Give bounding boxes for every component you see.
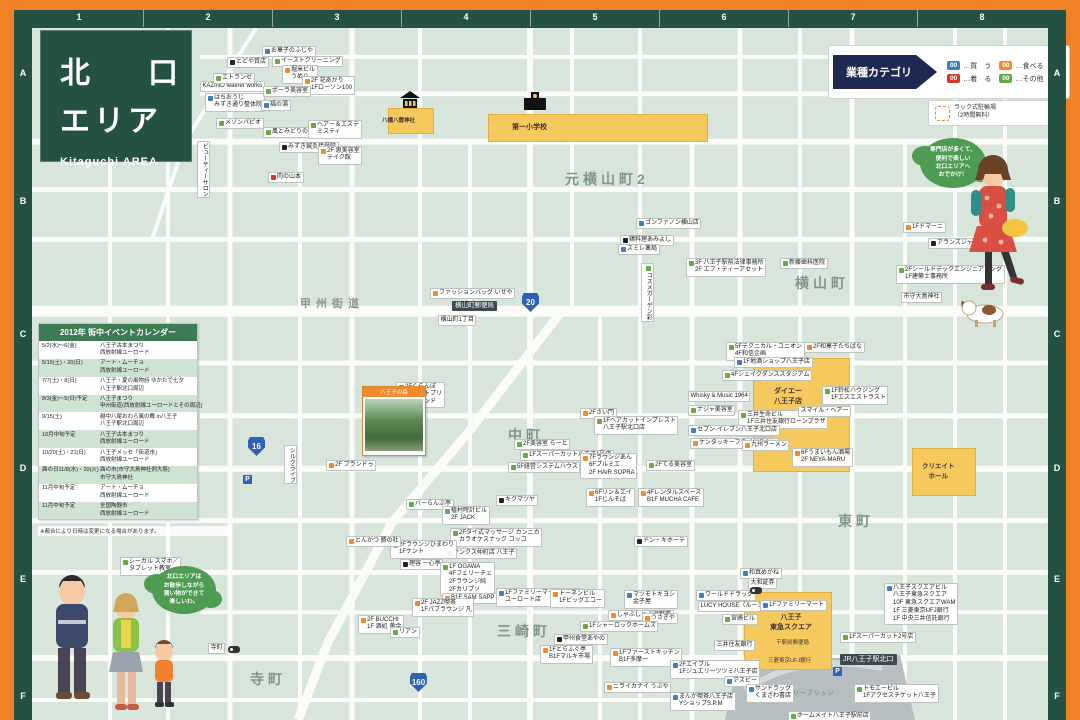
- map-label-text: 和真めがね: [749, 570, 779, 578]
- category-dot: [689, 261, 694, 266]
- mother-figure: [109, 593, 143, 710]
- event-date: 8/3(金)～5(日)予定: [42, 396, 100, 411]
- map-label: 1Fスーパーカット2号店: [840, 632, 916, 643]
- category-dot: [123, 560, 128, 565]
- category-dot: [230, 60, 235, 65]
- map-label: ポーラ美容室: [263, 86, 311, 97]
- legend-category-code: 00: [999, 74, 1012, 83]
- map-label: 1Fとらふぐ亭 B1Fマルキ市場: [540, 645, 593, 664]
- category-dot: [639, 221, 644, 226]
- map-label-text: 3F 八王子駅前法律事務所 2F エフ・ティーアセット: [695, 260, 764, 276]
- map-label-text: はちおうじ みずき通り整体院: [214, 95, 262, 111]
- category-dot: [543, 648, 548, 653]
- street-name-label: 甲州街道: [300, 295, 364, 311]
- category-dot: [349, 539, 354, 544]
- grid-column-label: 3: [334, 12, 339, 22]
- map-label-text: 2F ブランドゥ: [335, 462, 374, 470]
- category-dot: [649, 463, 654, 468]
- category-dot: [725, 373, 730, 378]
- grid-divider: [143, 10, 144, 27]
- school-label: 第一小学校: [512, 122, 547, 132]
- grid-row-label-right: A: [1048, 68, 1066, 78]
- category-dot: [613, 651, 618, 656]
- map-label-text: 4Fシェイクダンススタジアム: [731, 372, 810, 380]
- map-label-text: 八王子スクエアビル 八王子東急スクエア 10F 東急スクエアWAM 1F 三菱東…: [893, 585, 955, 624]
- map-label-text: ファッションバッグ いせや: [439, 290, 513, 298]
- category-dot: [899, 268, 904, 273]
- area-title-line2: エリア: [60, 96, 192, 140]
- map-label: 1Fヘアカットインプレスト 八王子駅北口店: [594, 416, 678, 435]
- grid-column-label: 4: [463, 12, 468, 22]
- map-label: ホームメイト八王子駅前店: [788, 711, 871, 720]
- legend-category-label: …買 う: [963, 61, 991, 71]
- map-label: 市守大鳥神社: [901, 292, 942, 303]
- map-label: ドン・キホーテ: [634, 536, 688, 547]
- map-label: 肉の山本: [268, 172, 304, 183]
- legend-item: 00…着 る: [947, 74, 991, 84]
- map-label: サンドラッグ くまざわ書店: [746, 684, 794, 703]
- map-label-text: メゾンパピオ: [225, 120, 261, 128]
- map-label: ファッションバッグ いせや: [430, 288, 515, 299]
- category-dot: [807, 345, 812, 350]
- map-label-text: 1Fヘアカットインプレスト 八王子駅北口店: [603, 418, 676, 434]
- map-label: リアン: [390, 627, 420, 638]
- map-label: スマイル・ヘアー: [798, 406, 851, 417]
- father-figure: [56, 575, 90, 699]
- map-label: ゴンファノン横山店: [636, 218, 701, 229]
- grid-column-label: 2: [205, 12, 210, 22]
- map-label-text: 2Fてる美容室: [655, 462, 692, 470]
- map-label-text: 2F和菓子たちばな: [813, 344, 862, 352]
- map-label-text: 横山町郵便局: [455, 302, 494, 310]
- map-label: シルクライブ: [284, 445, 297, 484]
- map-label: 九州ラーメン: [742, 440, 789, 451]
- category-dot: [305, 79, 310, 84]
- category-dot: [271, 175, 276, 180]
- category-dot: [415, 601, 420, 606]
- legend-category-label: …食べる: [1015, 61, 1043, 71]
- map-label-text: 植村時計ビル 2F JACK: [451, 508, 487, 524]
- school-icon: [522, 90, 548, 112]
- map-label-text: 市守大鳥神社: [904, 294, 940, 302]
- category-dot: [517, 442, 522, 447]
- map-label: 3F 八王子駅前法律事務所 2F エフ・ティーアセット: [686, 258, 766, 277]
- category-dot: [453, 531, 458, 536]
- map-label: 八王子スクエアビル 八王子東急スクエア 10F 東急スクエアWAM 1F 三菱東…: [884, 583, 958, 625]
- category-dot: [266, 89, 271, 94]
- map-label: ナジャ美容室: [688, 405, 735, 416]
- event-calendar-title: 2012年 街中イベントカレンダー: [39, 324, 197, 341]
- photo-image: [365, 399, 423, 451]
- grid-band-left: ABCDEF: [14, 10, 32, 720]
- event-calendar-row: 5/19(土)・20(日)アート・ムーチョ 西放射線ユーロード: [39, 359, 197, 377]
- district-label: 横山町: [795, 273, 849, 293]
- district-label: 寺町: [250, 669, 286, 689]
- family-illustration: [34, 570, 194, 720]
- event-date: 5/2(水)～6(金): [42, 343, 100, 358]
- category-dot: [393, 630, 398, 635]
- map-label: 寺町: [208, 643, 225, 654]
- grid-column-label: 1: [76, 12, 81, 22]
- map-label-text: ヘアー＆エステ ミスティ: [317, 122, 359, 138]
- shrine-icon: [398, 90, 422, 110]
- map-label-text: ナジャ美容室: [697, 407, 733, 415]
- event-calendar-row: 11月中旬予定アート・ムーチョ 西放射線ユーロード: [39, 484, 197, 502]
- map-label: 2F和菓子たちばな: [804, 342, 865, 353]
- bicycle-parking-icon: [935, 106, 950, 121]
- category-dot: [621, 247, 626, 252]
- area-title-line1: 北 口: [60, 48, 192, 92]
- event-detail: 八王子メッセ「街道市」 西放射線ユーロード: [100, 450, 194, 465]
- category-dot: [857, 687, 862, 692]
- event-calendar-row: 8/3(金)～5(日)予定八王子まつり 甲州街道(西放射線ユーロードとその周辺): [39, 395, 197, 413]
- map-label: 理容 一心亭: [400, 559, 443, 570]
- map-label-text: 2Fエイブル 1Fジュエリーツツミ八王子店: [679, 662, 757, 678]
- event-detail: 八王子まつり 甲州街道(西放射線ユーロードとその周辺): [100, 396, 203, 411]
- map-label: 1F地酒ショップ八王子店: [734, 357, 813, 368]
- map-label: エトランゼ: [213, 73, 255, 84]
- category-dot: [511, 465, 516, 470]
- grid-column-label: 8: [979, 12, 984, 22]
- map-label-text: トーネンビル 1Fビッグエコー: [559, 591, 602, 607]
- category-dot: [553, 592, 558, 597]
- map-label-text: 1Fファミリーマート: [769, 602, 824, 610]
- dog-figure: [961, 301, 1003, 327]
- grid-divider: [659, 10, 660, 27]
- category-dot: [623, 238, 628, 243]
- photo-caption: 八王子の森: [363, 387, 425, 397]
- grid-row-label-left: B: [14, 196, 32, 206]
- bicycle-parking-label: ラック式駐輪場 （2時間無料）: [954, 105, 996, 121]
- map-label-text: ポーラ美容室: [272, 88, 308, 96]
- category-dot: [931, 241, 936, 246]
- map-label: 横山町郵便局: [452, 301, 497, 311]
- category-dot: [673, 663, 678, 668]
- event-calendar-row: 酉の日11/8(水)・20(火)酉の市(市守大鳥神社例大祭) 市守大鳥神社: [39, 466, 197, 484]
- category-dot: [727, 679, 732, 684]
- map-label-text: 2F 花あかり 1Fローソン100: [311, 78, 352, 94]
- grid-row-label-left: F: [14, 691, 32, 701]
- parking-icon: P: [833, 667, 842, 676]
- category-dot: [523, 453, 528, 458]
- grid-column-label: 6: [721, 12, 726, 22]
- map-label-text: マツモトキヨシ 金子屋: [633, 592, 675, 608]
- grid-divider: [530, 10, 531, 27]
- grid-divider: [788, 10, 789, 27]
- map-label-text: ビューティーサロン: [200, 143, 208, 197]
- map-label: 2F 恵美容室 テイク館: [318, 146, 362, 165]
- category-dot: [906, 225, 911, 230]
- map-label: 甲州食堂あやの: [554, 634, 608, 645]
- event-detail: 八王子古本まつり 西放射線ユーロード: [100, 343, 194, 358]
- map-label: ビューティーサロン: [197, 141, 210, 198]
- event-detail: 八王子・夏の風物詩 ゆかたで七夕 八王子駅北口周辺: [100, 378, 194, 393]
- map-label: とどや質店: [227, 57, 269, 68]
- category-dot: [329, 463, 334, 468]
- map-label-text: 三井住友銀行: [717, 642, 753, 650]
- event-calendar-row: 9/15(土)越中八尾おわら風の舞 in八王子 八王子駅北口周辺: [39, 412, 197, 430]
- legend-item: 00…その他: [999, 74, 1043, 84]
- grid-row-label-left: A: [14, 68, 32, 78]
- map-label: 新藤歯科医院: [780, 258, 828, 269]
- map-label-text: 2F 恵美容室 テイク館: [327, 148, 360, 164]
- event-detail: 酉の市(市守大鳥神社例大祭) 市守大鳥神社: [100, 467, 194, 482]
- parking-icon: P: [243, 475, 252, 484]
- map-label-text: 甲州食堂あやの: [563, 636, 605, 644]
- event-detail: 八王子古本まつり 西放射線ユーロード: [100, 432, 194, 447]
- map-label: Whisky & Music 1964: [688, 391, 750, 402]
- event-date: 11月中旬予定: [42, 485, 100, 500]
- area-title-box: 北 口 エリア Kitaguchi AREA: [40, 30, 192, 162]
- category-dot: [673, 695, 678, 700]
- map-label: 福の湯: [261, 100, 291, 111]
- category-dot: [887, 586, 892, 591]
- map-label: 2F JAZZ喫茶 1Fパブラウンジ 凡: [412, 598, 474, 617]
- bicycle-parking-legend: ラック式駐輪場 （2時間無料）: [928, 100, 1060, 126]
- category-dot: [264, 103, 269, 108]
- category-dot: [743, 571, 748, 576]
- grid-row-label-left: C: [14, 329, 32, 339]
- map-label: 植村時計ビル 2F JACK: [442, 506, 490, 525]
- map-label-text: 6Fうまいもん酒場 2F NEYA-MARU: [801, 450, 850, 466]
- category-dot: [611, 613, 616, 618]
- station-label: JR八王子駅北口: [840, 654, 897, 665]
- map-label-text: 宮崎ビル: [731, 616, 755, 624]
- bus-stop-icon: [750, 587, 762, 594]
- category-dot: [843, 635, 848, 640]
- map-label: マツモトキヨシ 金子屋: [624, 590, 678, 609]
- category-dot: [443, 565, 448, 570]
- map-label: メゾンパピオ: [216, 118, 264, 129]
- map-label-text: 福の湯: [270, 102, 288, 110]
- category-dot: [216, 76, 221, 81]
- bus-stop-icon: [228, 646, 240, 653]
- map-label-text: サンクス仲町店 八王子: [453, 550, 515, 558]
- category-dot: [737, 360, 742, 365]
- event-date: 酉の日11/8(水)・20(火): [42, 467, 100, 482]
- map-label: キクマツヤ: [496, 495, 538, 506]
- category-legend: 業種カテゴリ 00…買 う00…食べる00…着 る00…その他: [828, 45, 1070, 99]
- map-label-text: キクマツヤ: [505, 497, 535, 505]
- map-label: 5F経営システムハウス: [508, 462, 580, 473]
- map-label-text: ワールドドラッグ: [705, 592, 753, 600]
- map-label-text: ニライカナイ うぶや: [613, 684, 669, 692]
- map-label-text: ホームメイト八王子駅前店: [797, 713, 869, 720]
- map-label-text: 5F経営システムハウス: [517, 464, 578, 472]
- district-label: 元横山町2: [565, 169, 649, 189]
- map-label-text: 1Fとらふぐ亭 B1Fマルキ市場: [549, 647, 590, 663]
- category-dot: [321, 149, 326, 154]
- event-calendar-row: 10月中旬予定八王子古本まつり 西放射線ユーロード: [39, 430, 197, 448]
- grid-row-label-left: D: [14, 463, 32, 473]
- category-dot: [699, 593, 704, 598]
- grid-row-label-left: E: [14, 574, 32, 584]
- category-dot: [725, 617, 730, 622]
- event-detail: 越中八尾おわら風の舞 in八王子 八王子駅北口周辺: [100, 414, 194, 429]
- category-dot: [445, 509, 450, 514]
- grid-row-label-right: E: [1048, 574, 1066, 584]
- woman-figure: [969, 155, 1028, 290]
- category-dot: [583, 411, 588, 416]
- map-label-text: セブン-イレブン八王子北口店: [697, 427, 777, 435]
- map-label-text: 2F JAZZ喫茶 1Fパブラウンジ 凡: [421, 600, 472, 616]
- map-label: 2Fタイ式マッサージ カンニカ カラオケスナック コッコ: [450, 528, 542, 547]
- child-figure: [155, 640, 174, 707]
- map-label: トーネンビル 1Fビッグエコー: [550, 589, 605, 608]
- map-label-text: 1F地酒ショップ八王子店: [743, 359, 810, 367]
- map-label-text: 1Fスーパーカット2号店: [849, 634, 913, 642]
- map-label-text: 2Fタイ式マッサージ カンニカ カラオケスナック コッコ: [459, 530, 540, 546]
- category-dot: [266, 130, 271, 135]
- category-dot: [791, 714, 796, 719]
- category-dot: [637, 539, 642, 544]
- category-dot: [783, 261, 788, 266]
- category-dot: [403, 562, 408, 567]
- grid-divider: [401, 10, 402, 27]
- event-detail: 全国陶器市 西放射線ユーロード: [100, 503, 194, 518]
- legend-item: 00…買 う: [947, 61, 991, 71]
- create-hall-label: クリエイト ホール: [922, 460, 955, 480]
- map-label: 1F鈴松ハウジング 1Fエスエストラスト: [822, 386, 888, 405]
- map-label: 4Fシェイクダンススタジアム: [722, 370, 812, 381]
- map-label-text: 横山町1丁目: [441, 317, 474, 325]
- district-label: 三崎町: [497, 621, 551, 641]
- map-label: 横山町1丁目: [438, 315, 476, 326]
- map-label: コスメガーデン彩: [641, 263, 654, 322]
- category-dot: [361, 618, 366, 623]
- legend-category-code: 00: [947, 61, 960, 70]
- map-label: 6Fリン＆エイ 1Fじんそば: [586, 488, 635, 507]
- map-label: セブン-イレブン八王子北口店: [688, 425, 780, 436]
- category-dot: [219, 121, 224, 126]
- grid-row-label-right: B: [1048, 196, 1066, 206]
- category-dot: [691, 408, 696, 413]
- category-dot: [583, 456, 588, 461]
- category-dot: [745, 443, 750, 448]
- map-label: 1Fシャーロックホームズ: [580, 621, 658, 632]
- event-date: 7/7(土)・8(日): [42, 378, 100, 393]
- post-office-label: 〒駅前郵便局: [776, 638, 809, 646]
- category-dot: [311, 123, 316, 128]
- map-label-text: ゴンファノン横山店: [645, 220, 699, 228]
- map-label-text: エトランゼ: [222, 75, 252, 83]
- map-label-text: スミレ薬局: [627, 246, 657, 254]
- map-label: 1Fファミリーマート: [760, 600, 827, 611]
- category-dot: [583, 624, 588, 629]
- grid-band-right: ABCDEF: [1048, 10, 1066, 720]
- map-label: トモエービル 1Fアクセスチケット八王子: [854, 684, 939, 703]
- shopper-illustration: [945, 150, 1045, 330]
- map-label: 2F美容室 らーと: [514, 439, 570, 450]
- category-dot: [265, 49, 270, 54]
- legend-category-label: …着 る: [963, 74, 991, 84]
- legend-items: 00…買 う00…食べる00…着 る00…その他: [947, 61, 1043, 84]
- map-label: スミレ薬局: [618, 244, 660, 255]
- map-label-text: 理容 一心亭: [409, 561, 441, 569]
- map-label-text: 1F OGAWA 4Fフェリーチェ 2Fラウンジ純 2Fカリプソ: [449, 564, 492, 595]
- map-label: 宮崎ビル: [722, 614, 758, 625]
- grid-band-top: 12345678: [14, 10, 1066, 27]
- event-calendar-note: ※都合により日時は変更になる場合があります。: [38, 526, 232, 536]
- grid-column-label: 5: [592, 12, 597, 22]
- event-detail: アート・ムーチョ 西放射線ユーロード: [100, 360, 194, 375]
- map-label: 三井住友銀行: [714, 640, 755, 651]
- map-label: ニライカナイ うぶや: [604, 682, 671, 693]
- map-label: とんかつ 勝の杜: [346, 536, 401, 547]
- event-date: 10月中旬予定: [42, 432, 100, 447]
- legend-category-code: 00: [947, 74, 960, 83]
- map-label-text: 2Fラウンジひまわり 1Fケント: [399, 542, 454, 558]
- category-dot: [641, 491, 646, 496]
- map-label: 7Fラウンジあん 6Fプルミエ 2F HAIR SOPRA: [580, 453, 637, 479]
- event-detail: アート・ムーチョ 西放射線ユーロード: [100, 485, 194, 500]
- area-title-subtitle: Kitaguchi AREA: [60, 156, 192, 168]
- map-label: 4Fレンタルスペース B1F MUCHA CAFE: [638, 488, 704, 507]
- category-dot: [646, 266, 651, 271]
- grid-row-label-right: C: [1048, 329, 1066, 339]
- event-calendar-row: 5/2(水)～6(金)八王子古本まつり 西放射線ユーロード: [39, 341, 197, 359]
- map-label-text: Whisky & Music 1964: [691, 393, 748, 401]
- ufj-bank-label: 三菱東京UFJ銀行: [768, 656, 811, 664]
- shrine-label: 八幡八雲神社: [382, 116, 415, 124]
- event-calendar-row: 7/7(土)・8(日)八王子・夏の風物詩 ゆかたで七夕 八王子駅北口周辺: [39, 377, 197, 395]
- map-label-text: 寺町: [211, 645, 223, 653]
- map-label-text: 2F美容室 らーと: [523, 441, 568, 449]
- map-label-text: スマイル・ヘアー: [801, 408, 849, 416]
- map-label-text: シルクライブ: [287, 447, 295, 483]
- map-label: ワールドドラッグ: [696, 590, 756, 601]
- tokyu-square-label: 八王子 東急スクエア: [770, 612, 812, 632]
- category-dot: [433, 291, 438, 296]
- map-label-text: お菓子のふじや: [271, 48, 313, 56]
- category-dot: [763, 603, 768, 608]
- event-date: 5/19(土)・20(日): [42, 360, 100, 375]
- map-label-text: リアン: [399, 629, 417, 637]
- category-dot: [693, 441, 698, 446]
- legend-header-arrow: 業種カテゴリ: [833, 55, 937, 89]
- grid-row-label-right: F: [1048, 691, 1066, 701]
- legend-category-code: 00: [999, 61, 1012, 70]
- grid-divider: [917, 10, 918, 27]
- map-label-text: 肉の山本: [277, 174, 301, 182]
- map-label: はちおうじ みずき通り整体院: [205, 93, 265, 112]
- map-label: 1Fドマーニ: [903, 222, 946, 233]
- map-label-text: 6Fリン＆エイ 1Fじんそば: [595, 490, 632, 506]
- category-dot: [691, 428, 696, 433]
- district-label: 東町: [838, 511, 874, 531]
- legend-category-label: …その他: [1015, 74, 1043, 84]
- category-dot: [729, 345, 734, 350]
- map-label-text: 1Fドマーニ: [912, 224, 943, 232]
- category-dot: [557, 637, 562, 642]
- category-dot: [627, 593, 632, 598]
- map-label: 6Fうまいもん酒場 2F NEYA-MARU: [792, 448, 853, 467]
- event-date: 9/15(土): [42, 414, 100, 429]
- event-calendar-row: 10/20(土)・21(日)八王子メッセ「街道市」 西放射線ユーロード: [39, 448, 197, 466]
- category-dot: [589, 491, 594, 496]
- map-label: 2F ブランドゥ: [326, 460, 376, 471]
- category-dot: [645, 616, 650, 621]
- category-dot: [499, 591, 504, 596]
- map-label-text: 新藤歯科医院: [789, 260, 825, 268]
- category-dot: [275, 59, 280, 64]
- category-dot: [285, 68, 290, 73]
- grid-divider: [272, 10, 273, 27]
- map-label-text: 4Fレンタルスペース B1F MUCHA CAFE: [647, 490, 701, 506]
- category-dot: [499, 498, 504, 503]
- map-label-text: 九州ラーメン: [751, 442, 787, 450]
- category-dot: [825, 389, 830, 394]
